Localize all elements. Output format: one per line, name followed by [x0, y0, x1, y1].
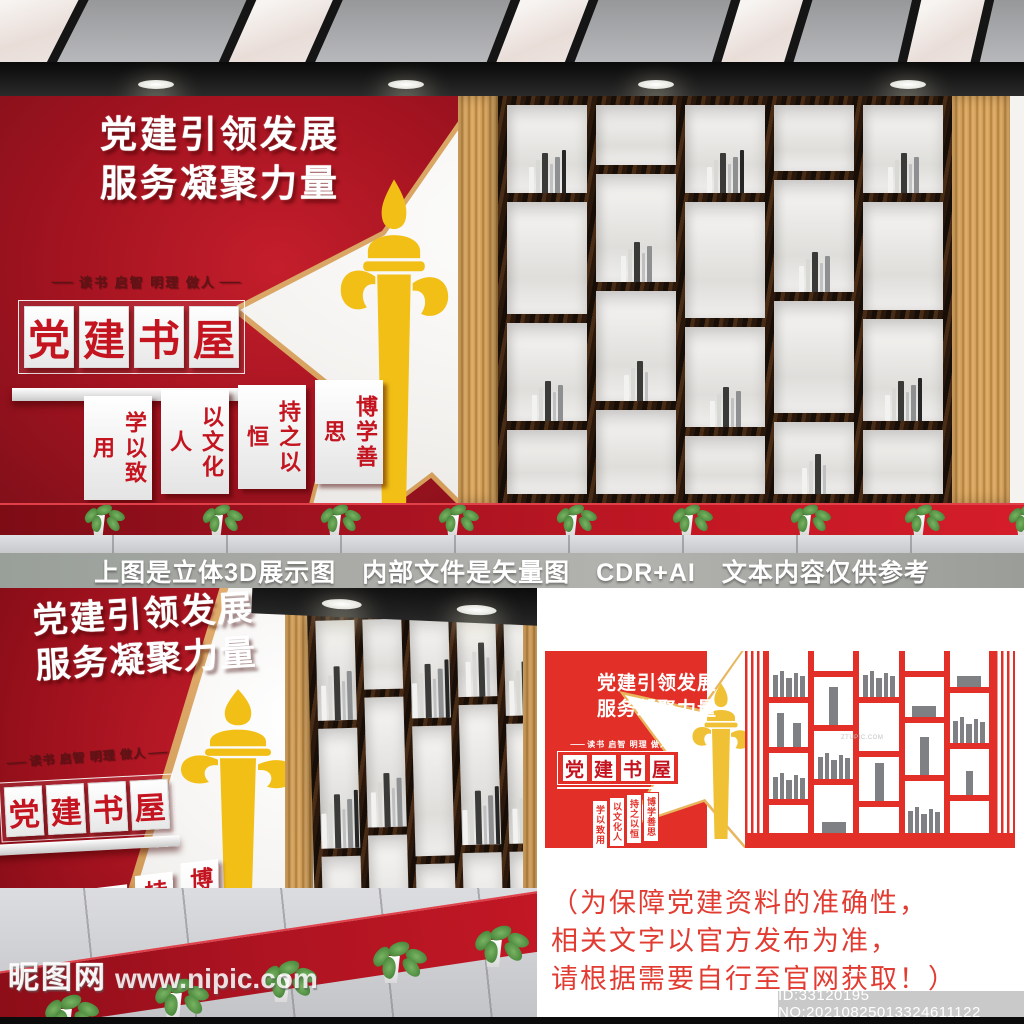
shelf-column — [944, 651, 995, 833]
book-spine — [911, 385, 916, 421]
motto-strip: 持之以恒 — [627, 795, 641, 843]
skylight-panel — [696, 0, 826, 62]
book-spine — [799, 266, 804, 292]
slogan-dash-left: — — [52, 274, 76, 289]
motto-strip: 学以致用 — [593, 801, 607, 848]
book-spine — [342, 809, 346, 848]
motto-strip: 以文化人 — [610, 798, 624, 846]
book-spines — [461, 786, 502, 845]
book-shape — [777, 713, 784, 747]
shelf-column — [763, 651, 808, 833]
book-shape — [915, 807, 919, 833]
sign-char: 书 — [134, 306, 184, 368]
shelf-column — [808, 651, 853, 833]
book-spine — [412, 683, 418, 718]
book-spine — [444, 659, 450, 717]
shelf-base-bar — [745, 833, 1015, 848]
book-spine — [634, 242, 640, 282]
downlight-icon — [890, 80, 926, 89]
sign-char: 屋 — [189, 306, 239, 368]
book-spine — [710, 401, 715, 427]
shelf-cell — [814, 785, 853, 833]
book-spine — [465, 662, 471, 697]
book-shape — [875, 763, 884, 801]
book-spine — [707, 167, 712, 193]
potted-plant — [434, 485, 471, 535]
book-spines — [320, 666, 354, 721]
potted-plant — [786, 485, 823, 535]
potted-plant — [552, 485, 589, 535]
site-url: www.nipic.com — [115, 963, 318, 995]
disclaimer-line: （为保障党建资料的准确性， — [551, 884, 957, 922]
book-spine — [486, 657, 490, 696]
book-spine — [354, 790, 360, 848]
motto-strip: 博学善思 — [315, 380, 383, 484]
sign-underline — [557, 787, 677, 789]
book-spine — [392, 788, 396, 827]
book-shape — [786, 678, 792, 697]
potted-plant — [1004, 485, 1024, 535]
shelf-cell — [769, 805, 808, 833]
red-plinth — [0, 503, 1024, 535]
ceiling-beam — [0, 62, 1024, 96]
sign-dangjian-shuwu: 党 建 书 屋 — [18, 300, 245, 374]
skylight-panel — [885, 0, 1006, 62]
site-logo: 昵图网 — [8, 952, 107, 997]
potted-plant — [80, 485, 117, 535]
book-spine — [495, 786, 501, 844]
book-spine — [740, 150, 744, 193]
shelf-cell — [950, 801, 989, 833]
wood-slat-panel — [523, 588, 537, 928]
leaf-icon — [1020, 504, 1024, 516]
book-spine — [731, 398, 734, 427]
downlight-icon — [638, 80, 674, 89]
shelf-cell — [859, 807, 898, 833]
book-spine — [909, 164, 912, 193]
book-spine — [823, 465, 826, 494]
book-shape — [974, 719, 978, 743]
book-shape — [890, 676, 895, 697]
sign-dangjian-shuwu: 党 建 书 屋 — [557, 751, 679, 785]
downlight-icon — [388, 80, 424, 89]
slogan-text: 读书 启智 明理 做人 — [79, 272, 216, 291]
vector-preview-panel: 党建引领发展 服务凝聚力量 — 读书 启智 明理 做人 — 党 建 书 屋 学以… — [537, 588, 1024, 1017]
wall-slogan: — 读书 启智 明理 做人 — — [553, 739, 703, 750]
shelf-column — [774, 105, 854, 494]
shelf-cell — [596, 105, 676, 165]
wood-slat-panel — [458, 96, 498, 503]
book-spine — [383, 773, 390, 827]
book-shape — [980, 722, 985, 743]
book-shape — [957, 676, 981, 687]
shelf-cell — [596, 174, 676, 282]
book-spine — [558, 385, 563, 421]
book-spine — [736, 391, 741, 427]
potted-plant — [668, 485, 705, 535]
shelf-cell — [364, 697, 406, 828]
book-shape — [786, 780, 792, 799]
book-spines — [410, 659, 451, 718]
book-spine — [806, 259, 810, 292]
shelf-cell — [863, 319, 943, 421]
book-spine — [542, 153, 548, 193]
book-spine — [645, 372, 648, 401]
book-spine — [512, 809, 518, 844]
book-shape — [921, 814, 927, 833]
slogan-text: 读书 启智 明理 做人 — [587, 739, 669, 750]
book-spines — [369, 773, 403, 828]
book-shape — [908, 811, 913, 833]
wood-slat-panel — [952, 96, 1010, 503]
shelf-cell — [596, 291, 676, 401]
book-shape — [966, 724, 972, 743]
downlight-icon — [322, 598, 362, 610]
shelf-cell — [456, 616, 497, 697]
book-spine — [906, 392, 909, 421]
sign-char: 书 — [620, 754, 646, 782]
shelf-cell — [507, 105, 587, 193]
book-shape — [773, 777, 778, 799]
sign-dangjian-shuwu: 党 建 书 屋 — [0, 773, 175, 842]
book-spines — [709, 387, 742, 427]
book-spine — [475, 791, 482, 845]
potted-plant — [366, 916, 416, 984]
sign-char: 建 — [46, 783, 87, 835]
book-shape — [960, 717, 964, 743]
book-spine — [462, 810, 468, 845]
book-shape — [839, 755, 843, 779]
book-shape — [818, 757, 823, 779]
motto-strips: 学以致用 以文化人 持之以恒 博学善思 — [593, 793, 661, 848]
shelf-cell — [774, 105, 854, 171]
potted-plant — [198, 485, 235, 535]
skylight-panel — [200, 0, 358, 62]
downlight-icon — [456, 604, 496, 616]
book-shape — [780, 671, 784, 697]
book-spines — [620, 242, 653, 282]
book-spines — [884, 378, 923, 421]
book-shape — [780, 773, 784, 799]
book-shape — [831, 760, 837, 779]
book-spine — [728, 164, 731, 193]
site-watermark: 昵图网 www.nipic.com — [8, 952, 318, 997]
shelf-column — [596, 105, 676, 494]
book-shape — [966, 771, 973, 795]
slogan-dash-right: — — [147, 744, 169, 759]
book-spine — [328, 803, 333, 848]
potted-plant — [900, 485, 937, 535]
book-spine — [516, 671, 521, 716]
shelf-cell — [459, 704, 502, 845]
book-spine — [901, 153, 907, 193]
motto-strip: 以文化人 — [161, 390, 229, 494]
sign-char: 屋 — [130, 779, 171, 831]
sign-char: 党 — [24, 306, 74, 368]
image-id-badge: ID:33120195 NO:20210825013324611122 — [778, 991, 1024, 1017]
book-spine — [898, 381, 904, 421]
render-3d-wide-view: 党建引领发展 服务凝聚力量 — 读书 启智 明理 做人 — 党 建 书 屋 学以… — [0, 0, 1024, 553]
shelf-cell — [362, 619, 403, 690]
shelf-cell — [769, 703, 808, 753]
book-shape — [863, 675, 868, 697]
shelf-cell — [685, 327, 765, 427]
book-spine — [562, 150, 566, 193]
shelf-cell — [863, 105, 943, 193]
book-spines — [887, 153, 920, 193]
book-spines — [320, 790, 361, 849]
book-spine — [555, 157, 560, 193]
shelf-cell — [814, 651, 853, 677]
book-spine — [642, 253, 645, 282]
motto-strip: 博学善思 — [644, 793, 658, 841]
book-spine — [918, 378, 922, 421]
book-shape — [794, 775, 798, 799]
book-spine — [895, 160, 899, 193]
book-spine — [347, 671, 353, 720]
wall-title-line1: 党建引领发展 — [100, 110, 340, 159]
book-spine — [637, 361, 643, 401]
book-spine — [885, 395, 890, 421]
book-spine — [419, 673, 424, 718]
skylight-panel — [469, 0, 614, 62]
stock-design-preview: 党建引领发展 服务凝聚力量 — 读书 启智 明理 做人 — 党 建 书 屋 学以… — [0, 0, 1024, 1024]
shelf-cell — [905, 723, 944, 781]
book-spine — [553, 392, 556, 421]
book-spines — [623, 361, 649, 401]
book-shape — [912, 706, 936, 717]
shelf-cell — [409, 617, 451, 718]
book-spine — [472, 652, 477, 697]
book-spine — [532, 395, 537, 421]
shelf-cell — [769, 753, 808, 805]
book-spine — [720, 153, 726, 193]
vector-culture-wall: 党建引领发展 服务凝聚力量 — 读书 启智 明理 做人 — 党 建 书 屋 学以… — [545, 651, 1015, 848]
stripe-decor — [745, 651, 763, 848]
book-spine — [733, 157, 738, 193]
book-spine — [628, 249, 632, 282]
shelf-cell — [596, 410, 676, 494]
shelf-column — [507, 105, 587, 494]
shelf-cell — [774, 422, 854, 494]
vector-watermark: ZTUPIC.COM — [841, 735, 883, 741]
skylight-panel — [0, 0, 103, 62]
wall-title: 党建引领发展 服务凝聚力量 — [579, 671, 735, 723]
book-spine — [334, 666, 341, 720]
book-spine — [717, 394, 721, 427]
book-shape — [876, 678, 882, 697]
shelf-column — [899, 651, 944, 833]
shelf-cell — [859, 757, 898, 807]
shelf-column — [853, 651, 898, 833]
book-spine — [545, 381, 551, 421]
sign-char: 屋 — [649, 754, 675, 782]
book-spine — [488, 795, 494, 844]
book-spine — [438, 669, 444, 718]
book-shape — [800, 676, 805, 697]
shelf-cell — [315, 620, 357, 721]
book-spine — [892, 388, 896, 421]
book-spine — [342, 681, 346, 720]
sign-char: 建 — [79, 306, 129, 368]
shelf-cell — [814, 677, 853, 731]
sign-char: 党 — [562, 754, 588, 782]
motto-strips: 学以致用 以文化人 持之以恒 博学善思 — [84, 380, 383, 500]
shelf-cell — [318, 728, 360, 849]
stripe-decor — [995, 651, 1015, 848]
shelf-cell — [905, 781, 944, 833]
book-spine — [433, 679, 437, 718]
book-spines — [706, 150, 745, 193]
bookshelf — [498, 96, 952, 503]
book-spines — [531, 381, 564, 421]
book-spine — [621, 256, 626, 282]
book-shape — [935, 812, 940, 833]
wall-title: 党建引领发展 服务凝聚力量 — [100, 110, 340, 208]
book-spine — [825, 256, 830, 292]
book-spine — [631, 368, 635, 401]
downlight-icon — [138, 80, 174, 89]
shelf-cell — [774, 180, 854, 292]
shelf-column — [863, 105, 943, 494]
shelf-cell — [859, 703, 898, 757]
culture-wall: 党建引领发展 服务凝聚力量 — 读书 启智 明理 做人 — 党 建 书 屋 学以… — [0, 96, 1024, 503]
wall-title: 党建引领发展 服务凝聚力量 — [31, 588, 258, 689]
book-spine — [714, 160, 718, 193]
book-shape — [884, 673, 888, 697]
book-spines — [463, 642, 490, 697]
shelf-cell — [412, 725, 454, 856]
potted-plant — [468, 900, 518, 968]
book-shape — [800, 778, 805, 799]
book-spine — [334, 794, 341, 848]
book-spine — [820, 263, 823, 292]
shelf-cell — [859, 651, 898, 703]
shelf-cell — [769, 651, 808, 703]
sign-char: 建 — [591, 754, 617, 782]
book-shape — [929, 809, 933, 833]
book-spine — [321, 686, 327, 721]
sign-char: 书 — [88, 781, 129, 833]
shelf-cell — [685, 105, 765, 193]
shelf-cell — [905, 651, 944, 677]
disclaimer-text: （为保障党建资料的准确性， 相关文字以官方发布为准， 请根据需要自行至官网获取！… — [551, 884, 957, 998]
book-spines — [798, 252, 831, 292]
book-shape — [793, 723, 801, 747]
ceiling — [0, 0, 1024, 62]
slogan-dash-left: — — [571, 740, 587, 749]
book-shape — [953, 721, 958, 743]
book-spine — [469, 800, 474, 845]
book-spine — [888, 167, 893, 193]
book-spine — [328, 675, 333, 720]
bookshelf — [763, 651, 995, 833]
wall-title-line2: 服务凝聚力量 — [579, 697, 735, 723]
book-spines — [528, 150, 567, 193]
book-spine — [539, 388, 543, 421]
motto-strip: 持之以恒 — [238, 385, 306, 489]
book-shape — [822, 822, 846, 833]
book-spine — [536, 160, 540, 193]
shelf-cell — [950, 693, 989, 749]
shelf-cell — [507, 202, 587, 314]
shelf-cell — [950, 749, 989, 801]
wall-title-line2: 服务凝聚力量 — [100, 159, 340, 208]
bottom-border — [0, 1017, 1024, 1024]
book-shape — [829, 687, 838, 725]
book-shape — [845, 758, 850, 779]
shelf-cell — [950, 651, 989, 693]
slogan-dash-right: — — [669, 740, 685, 749]
book-spine — [723, 387, 729, 427]
slogan-dash-left: — — [6, 754, 28, 769]
shelf-cell — [863, 202, 943, 310]
shelf-cell — [507, 323, 587, 421]
shelf-column — [685, 105, 765, 494]
book-spine — [624, 375, 629, 401]
book-spine — [483, 805, 487, 844]
book-spine — [550, 164, 553, 193]
book-shape — [794, 673, 798, 697]
shelf-cell — [685, 202, 765, 318]
book-spine — [509, 681, 515, 716]
book-shape — [773, 675, 778, 697]
book-shape — [920, 737, 929, 775]
book-spine — [321, 814, 327, 849]
sign-char: 党 — [4, 785, 45, 837]
book-spine — [812, 252, 818, 292]
shelf-cell — [905, 677, 944, 723]
book-spine — [477, 642, 484, 696]
shelf-cell — [774, 301, 854, 413]
book-spine — [425, 664, 432, 718]
book-spine — [347, 799, 353, 848]
potted-plant — [316, 485, 353, 535]
disclaimer-line: 相关文字以官方发布为准， — [551, 922, 957, 960]
slogan-dash-right: — — [219, 274, 243, 289]
book-spine — [529, 167, 534, 193]
book-spine — [396, 778, 402, 827]
book-spine — [371, 792, 377, 827]
book-shape — [825, 753, 829, 779]
wall-slogan: — 读书 启智 明理 做人 — — [56, 272, 239, 291]
book-shape — [870, 671, 874, 697]
book-spine — [647, 246, 652, 282]
divider-note: 上图是立体3D展示图 内部文件是矢量图 CDR+AI 文本内容仅供参考 — [0, 553, 1024, 588]
book-spine — [378, 782, 383, 827]
tile-floor — [0, 535, 1024, 553]
book-spine — [914, 157, 919, 193]
wall-title-line1: 党建引领发展 — [579, 671, 735, 697]
